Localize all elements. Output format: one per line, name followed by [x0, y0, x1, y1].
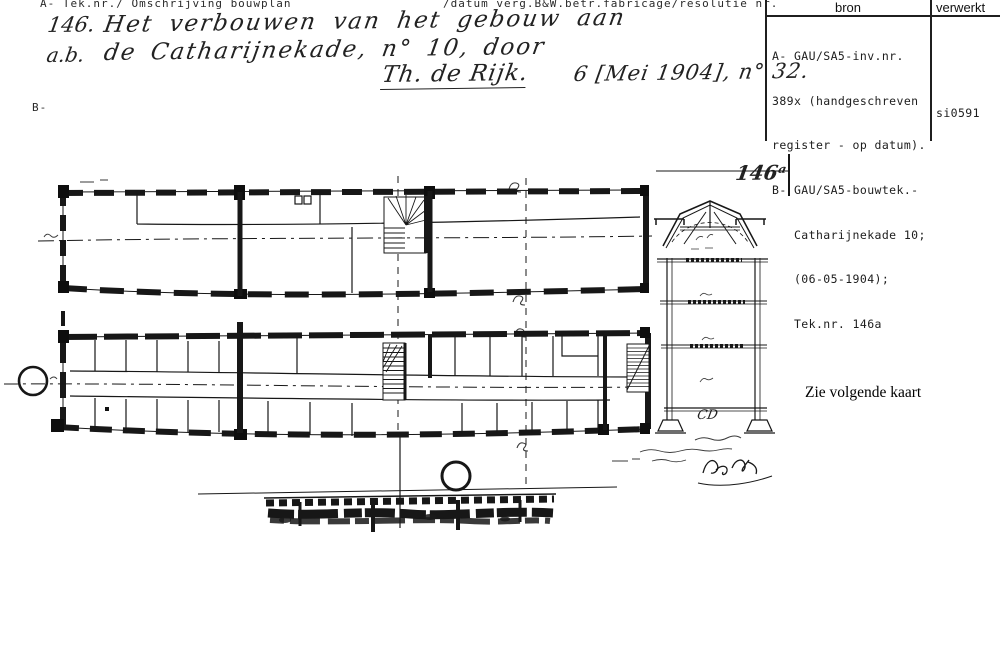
handwritten-date-resolution: 6 [Mei 1904], n° 32.: [572, 59, 811, 86]
quay-elevation: [198, 462, 617, 532]
lower-floor-plan: [4, 311, 650, 440]
lower-stairs: [383, 343, 405, 400]
ground-line: [198, 487, 617, 494]
upper-floor-plan: [38, 180, 652, 299]
corridor-walls: [70, 371, 648, 400]
quay-rail: [264, 494, 556, 498]
section-walls-floors: [657, 258, 768, 420]
plan-outline: [63, 190, 646, 295]
center-axis-line: [38, 236, 652, 241]
east-stairs-hatched: [627, 344, 649, 392]
table-header-underline: [765, 15, 1000, 17]
cross-section: [612, 154, 790, 485]
interior-bearing-walls: [430, 334, 605, 430]
signature-scribble: [695, 436, 772, 485]
architectural-drawing: [0, 150, 1000, 647]
table-header-bron: bron: [766, 0, 930, 15]
reference-circle-south: [442, 462, 470, 490]
scanned-archive-card: A- Tek.nr./ Omschrijving bouwplan /datum…: [0, 0, 1000, 647]
upper-stairs: [384, 195, 426, 253]
margin-scribbles: [44, 180, 108, 237]
handwritten-plan-number: 146.: [46, 12, 97, 37]
reference-circle-west: [19, 367, 47, 395]
b-row-label: B-: [32, 101, 47, 114]
north-wall: [63, 333, 648, 337]
handwritten-prefix: a.b.: [45, 42, 86, 67]
chimney-marks: [295, 196, 311, 204]
south-wall: [63, 288, 646, 295]
wall-piers: [58, 185, 649, 299]
floor-joists: [688, 302, 745, 346]
footings: [655, 420, 775, 433]
tek-nr-header-label: A- Tek.nr./ Omschrijving bouwplan: [40, 0, 292, 10]
table-header-verwerkt: verwerkt: [936, 0, 985, 15]
room-dot: [105, 407, 109, 411]
corridor-axis-line: [4, 384, 648, 388]
wall-piers: [51, 327, 650, 440]
bron-line: 389x (handgeschreven: [772, 94, 926, 109]
axis-number-scribbles: [509, 183, 528, 451]
quay-crenellation: [266, 499, 554, 503]
quay-texture-band: [268, 512, 553, 515]
circle-annotation: [50, 377, 57, 379]
verwerkt-cell: si0591: [936, 106, 980, 121]
cell-partitions-north: [95, 335, 598, 376]
handwritten-name: Th. de Rijk.: [380, 60, 530, 90]
scale-script: [695, 436, 741, 440]
table-column-divider: [930, 0, 932, 141]
handwritten-note-scribble: [612, 449, 732, 462]
roof-truss: [654, 201, 766, 249]
